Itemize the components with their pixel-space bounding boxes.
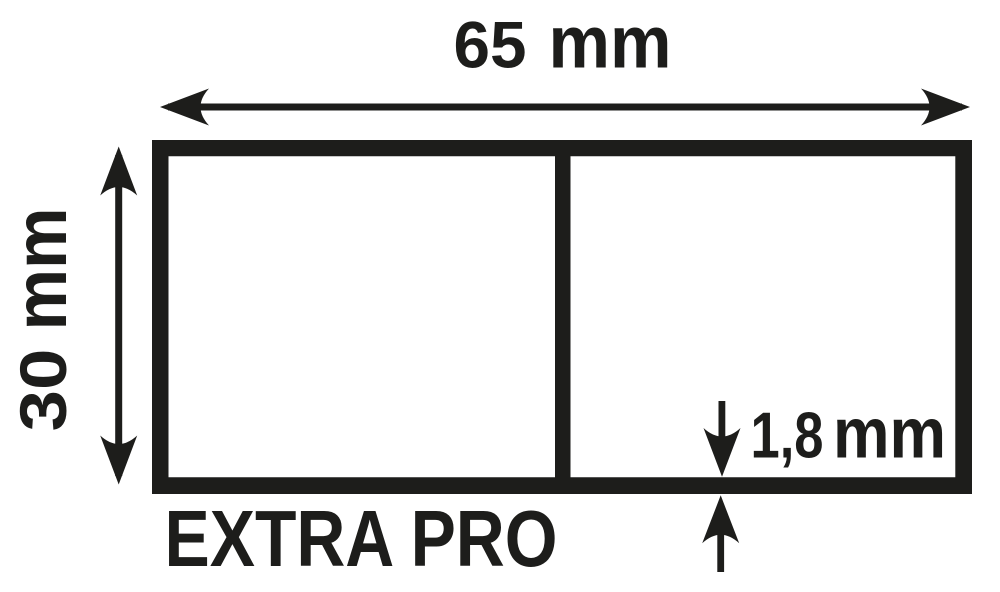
svg-text:65: 65 [454, 8, 527, 82]
svg-text:mm: mm [0, 208, 82, 331]
svg-text:1,8: 1,8 [751, 399, 824, 472]
svg-text:mm: mm [549, 1, 672, 84]
svg-text:EXTRA PRO: EXTRA PRO [165, 494, 558, 583]
svg-text:30: 30 [6, 349, 80, 432]
svg-text:mm: mm [833, 395, 946, 474]
